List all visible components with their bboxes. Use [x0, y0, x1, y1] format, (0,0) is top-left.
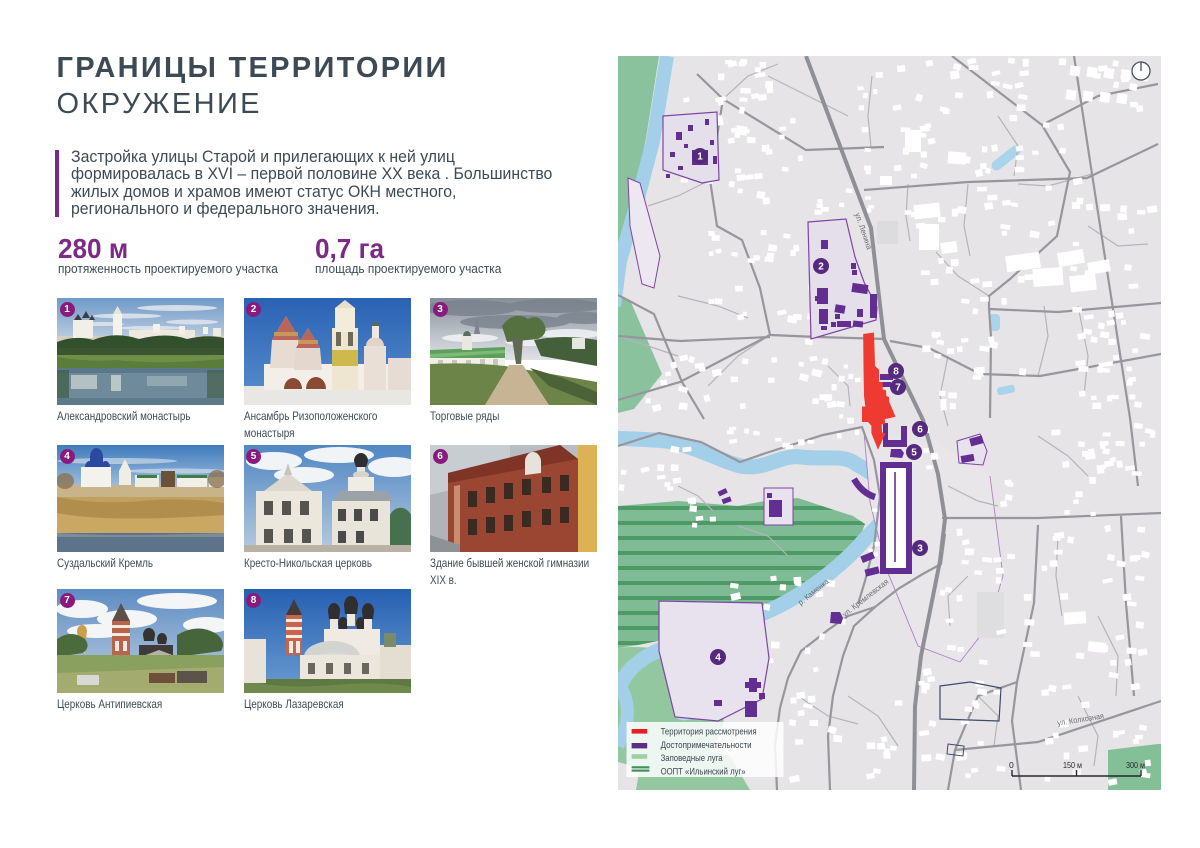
svg-text:Достопримечательности: Достопримечательности: [661, 740, 752, 750]
svg-text:1: 1: [697, 152, 703, 163]
svg-text:Заповедные луга: Заповедные луга: [661, 753, 724, 763]
svg-text:7: 7: [895, 383, 901, 394]
svg-text:300 м: 300 м: [1126, 760, 1145, 770]
svg-text:4: 4: [715, 653, 721, 664]
svg-text:5: 5: [911, 448, 917, 459]
svg-text:8: 8: [893, 367, 899, 378]
svg-text:Территория рассмотрения: Территория рассмотрения: [661, 726, 757, 736]
svg-text:150 м: 150 м: [1063, 760, 1082, 770]
svg-text:6: 6: [917, 425, 923, 436]
svg-text:2: 2: [818, 262, 824, 273]
svg-text:3: 3: [917, 544, 923, 555]
svg-text:0: 0: [1009, 760, 1014, 770]
svg-text:ООПТ «Ильинский луг»: ООПТ «Ильинский луг»: [661, 766, 746, 776]
